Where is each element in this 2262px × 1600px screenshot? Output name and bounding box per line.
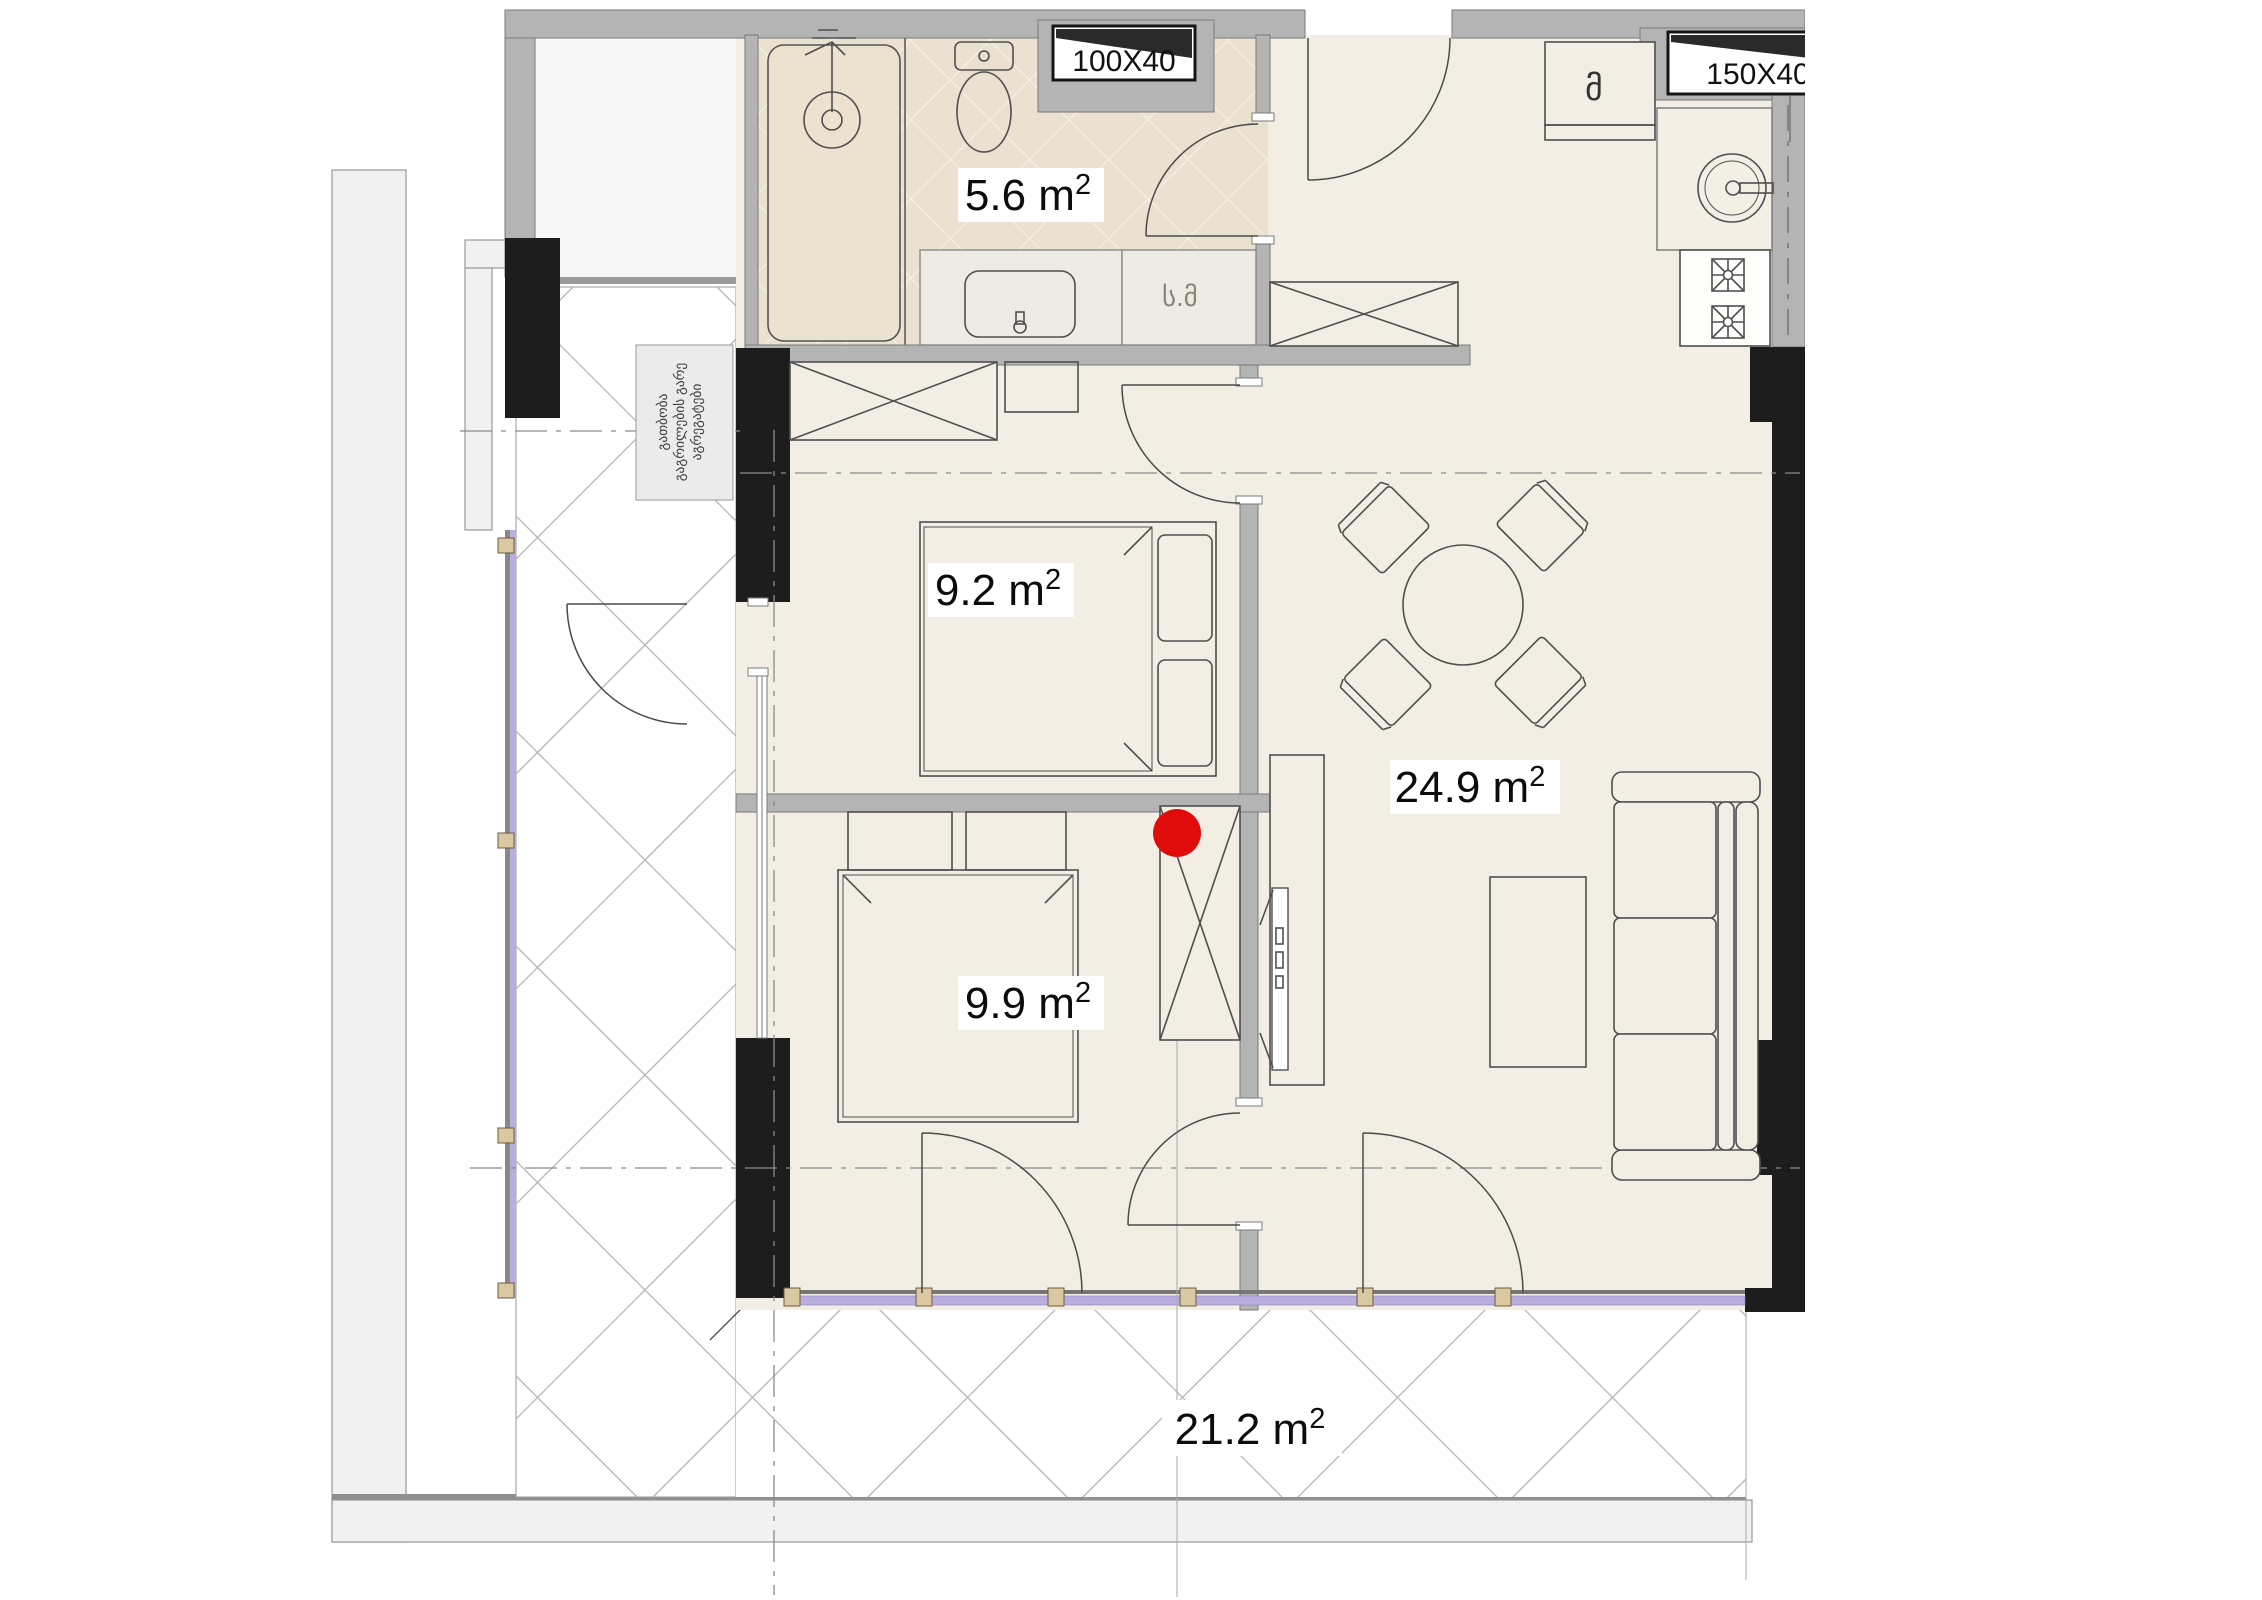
floor-plan-drawing: ს.მ bbox=[0, 0, 2262, 1600]
terrace-outer-rail-bottom bbox=[332, 1500, 1752, 1542]
column-right-notch-top bbox=[1750, 347, 1772, 422]
note-line-3: აგრეგატები bbox=[689, 384, 705, 461]
stove bbox=[1680, 250, 1770, 346]
wall-bathroom-right-upper bbox=[1256, 35, 1270, 120]
wall-bedrooms-right-c bbox=[1240, 812, 1258, 1105]
sofa-armrest bbox=[1612, 1150, 1760, 1180]
hvac-note: გათბობა გაგრილების გარე აგრეგატები bbox=[636, 345, 733, 500]
fridge-label: მ bbox=[1585, 70, 1603, 108]
vanity-counter bbox=[920, 250, 1122, 345]
kitchen-counter bbox=[1657, 108, 1773, 250]
wall-bathroom-right-lower bbox=[1256, 238, 1270, 345]
shower-tray bbox=[768, 45, 900, 341]
glazing-frame-line bbox=[505, 530, 510, 1298]
column-left-upper bbox=[736, 348, 790, 602]
svg-text:9.9 m2: 9.9 m2 bbox=[965, 977, 1091, 1028]
glazing-post bbox=[1048, 1288, 1064, 1306]
sofa-backrest bbox=[1736, 802, 1758, 1150]
door-jamb bbox=[748, 668, 768, 676]
tv-screen bbox=[1272, 888, 1288, 1070]
column-terrace bbox=[505, 238, 560, 418]
sofa-armrest bbox=[1612, 772, 1760, 802]
hall-closet bbox=[1270, 282, 1458, 346]
wall-neighbor-left bbox=[505, 10, 535, 277]
glazing-post bbox=[498, 1128, 514, 1143]
door-jamb bbox=[1252, 113, 1274, 121]
location-marker[interactable] bbox=[1153, 809, 1201, 857]
svg-text:9.2 m2: 9.2 m2 bbox=[935, 564, 1061, 615]
glazing-post bbox=[498, 1283, 514, 1298]
wall-bathroom-left bbox=[745, 35, 758, 345]
svg-text:21.2 m2: 21.2 m2 bbox=[1175, 1403, 1326, 1454]
glazing-post bbox=[1180, 1288, 1196, 1306]
glazing-glass-line bbox=[790, 1296, 1745, 1305]
svg-text:5.6 m2: 5.6 m2 bbox=[965, 169, 1091, 220]
door-jamb bbox=[748, 598, 768, 606]
note-line-1: გათბობა bbox=[655, 393, 671, 450]
sofa-seat bbox=[1614, 802, 1716, 918]
area-label-bedroom-bottom: 9.9 m2 bbox=[958, 976, 1104, 1030]
burner-icon bbox=[1712, 306, 1744, 338]
canvas-margin-right bbox=[1805, 0, 2262, 1600]
note-line-2: გაგრილების გარე bbox=[672, 363, 688, 482]
vent-large-label: 150X40 bbox=[1706, 58, 1809, 91]
column-bottom-right bbox=[1745, 1288, 1805, 1312]
floor-plan-page: ს.მ bbox=[0, 0, 2262, 1600]
glazing-post bbox=[784, 1288, 800, 1306]
sofa-backrest bbox=[1718, 802, 1734, 1150]
glazing-post bbox=[916, 1288, 932, 1306]
column-right bbox=[1772, 347, 1805, 1298]
terrace-glazing-left bbox=[498, 530, 516, 1298]
wardrobe-top bbox=[790, 362, 997, 440]
glazing-post bbox=[498, 538, 514, 553]
wall-bedrooms-right-b bbox=[1240, 498, 1258, 794]
burner-icon bbox=[1712, 259, 1744, 291]
washing-machine-label: ს.მ bbox=[1162, 282, 1198, 312]
dining-table bbox=[1403, 545, 1523, 665]
glazing-frame-line bbox=[790, 1290, 1745, 1294]
vent-box-small: 100X40 bbox=[1053, 26, 1195, 80]
neighbor-floor bbox=[535, 35, 745, 277]
sofa-seat bbox=[1614, 918, 1716, 1034]
sofa bbox=[1612, 772, 1760, 1180]
vent-small-label: 100X40 bbox=[1072, 45, 1175, 78]
terrace-inner-rail-side bbox=[465, 268, 492, 530]
area-label-bedroom-top: 9.2 m2 bbox=[928, 563, 1074, 617]
fridge: მ bbox=[1545, 42, 1655, 140]
glazing-post bbox=[498, 833, 514, 848]
glazing-post bbox=[1357, 1288, 1373, 1306]
door-jamb bbox=[1252, 236, 1274, 244]
area-label-living: 24.9 m2 bbox=[1390, 760, 1560, 814]
glazing-bottom bbox=[784, 1288, 1745, 1306]
sofa-seat bbox=[1614, 1034, 1716, 1150]
terrace-outer-rail-left bbox=[332, 170, 406, 1542]
glazing-glass-line bbox=[510, 530, 516, 1298]
glazing-post bbox=[1495, 1288, 1511, 1306]
area-label-bathroom: 5.6 m2 bbox=[958, 168, 1104, 222]
area-label-terrace: 21.2 m2 bbox=[1162, 1400, 1342, 1456]
svg-text:24.9 m2: 24.9 m2 bbox=[1395, 761, 1546, 812]
